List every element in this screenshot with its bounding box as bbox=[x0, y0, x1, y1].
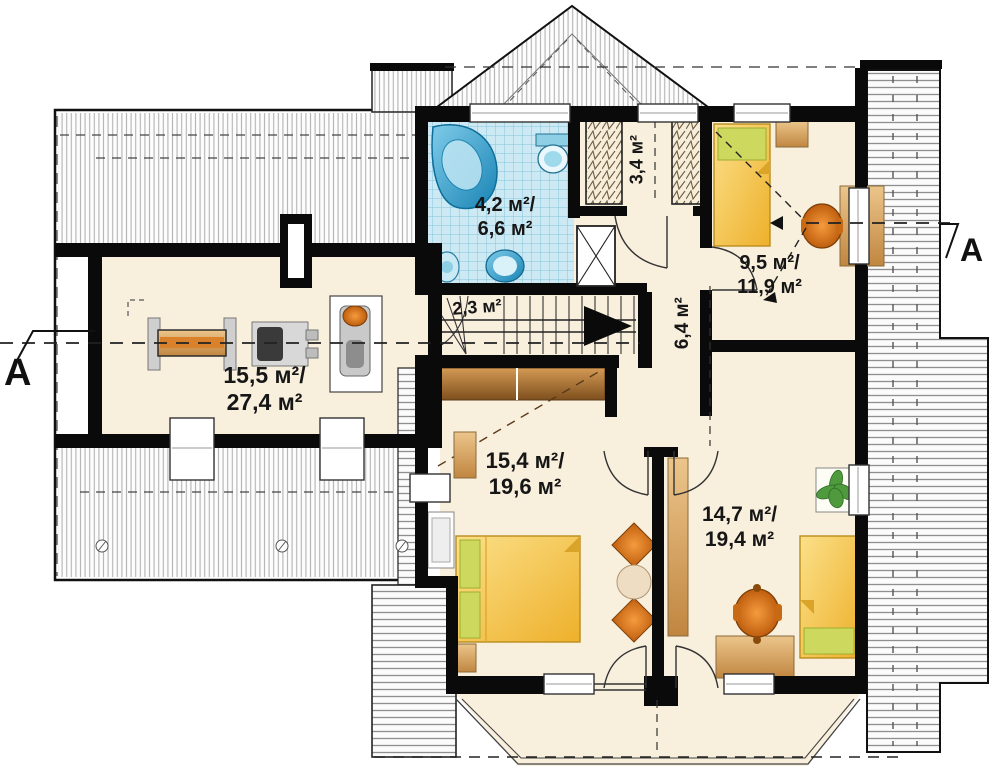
gym-weight-machine-icon bbox=[252, 322, 318, 366]
gym-area-label: 15,5 м²/27,4 м² bbox=[182, 362, 347, 416]
gable-roof bbox=[433, 6, 858, 110]
bedroom-bottom-right-area-label: 14,7 м²/19,4 м² bbox=[672, 503, 807, 553]
floor-plan-canvas: 15,5 м²/27,4 м² 4,2 м²/6,6 м² 2,3 м² 3,4… bbox=[0, 0, 1000, 773]
section-marker-a-left: A bbox=[4, 352, 31, 395]
bedroom-top-right-area-label: 9,5 м²/11,9 м² bbox=[712, 252, 827, 299]
bathroom-area-label: 4,2 м²/6,6 м² bbox=[453, 194, 557, 241]
washbasin-icon bbox=[486, 250, 524, 282]
bedroom-bottom-left-area-label: 15,4 м²/19,6 м² bbox=[455, 448, 595, 500]
attic-hatch bbox=[577, 226, 615, 286]
chimney bbox=[280, 214, 312, 288]
roof-window bbox=[170, 418, 214, 480]
hall-area-label: 6,4 м² bbox=[672, 273, 694, 373]
wardrobe-area-label: 3,4 м² bbox=[626, 110, 647, 210]
floor-plan-drawing bbox=[0, 0, 1000, 773]
bed-single-top-icon bbox=[714, 124, 770, 246]
nightstand-top-icon bbox=[776, 121, 808, 147]
bed-double-icon bbox=[456, 536, 580, 642]
roof-window bbox=[320, 418, 364, 480]
chairs-and-table-icon bbox=[612, 523, 656, 642]
toilet-icon bbox=[536, 134, 570, 173]
section-marker-a-right: A bbox=[960, 232, 983, 269]
chair-top-right-icon bbox=[801, 204, 843, 248]
right-roof-slope bbox=[860, 60, 988, 752]
dresser-left-icon bbox=[428, 512, 454, 568]
bed-single-right-icon bbox=[800, 536, 858, 658]
